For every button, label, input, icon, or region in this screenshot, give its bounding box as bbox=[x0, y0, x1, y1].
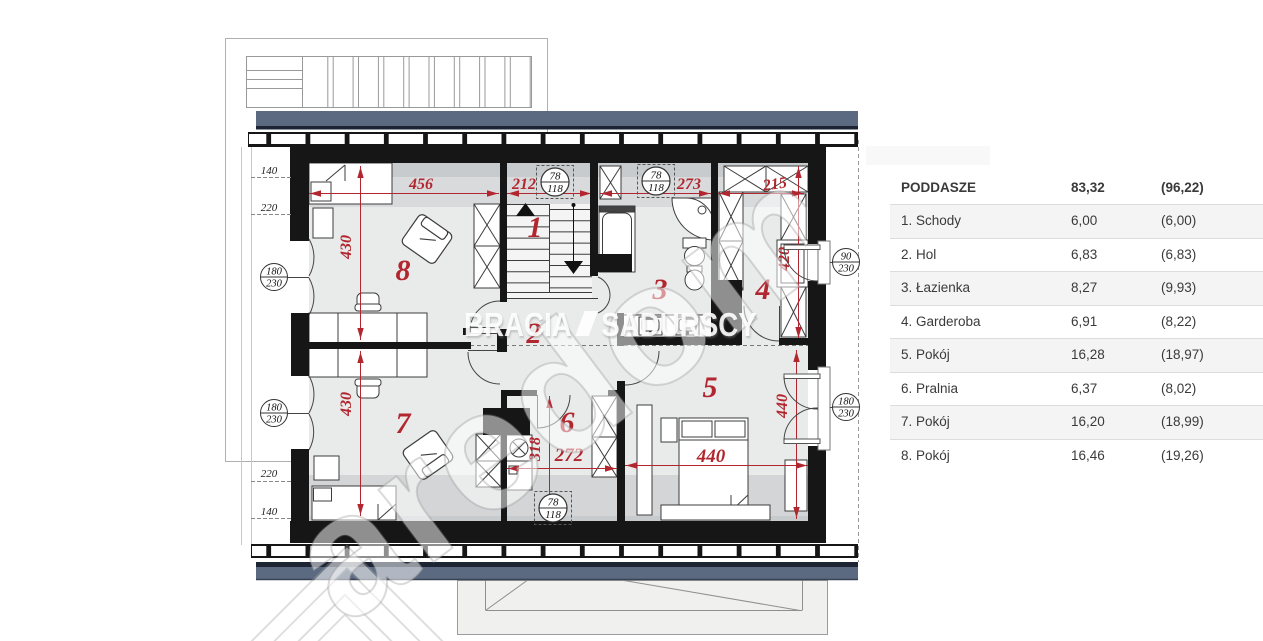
svg-text:180: 180 bbox=[838, 397, 855, 408]
svg-text:230: 230 bbox=[838, 409, 855, 420]
svg-text:230: 230 bbox=[838, 264, 855, 275]
svg-text:90: 90 bbox=[841, 252, 852, 263]
